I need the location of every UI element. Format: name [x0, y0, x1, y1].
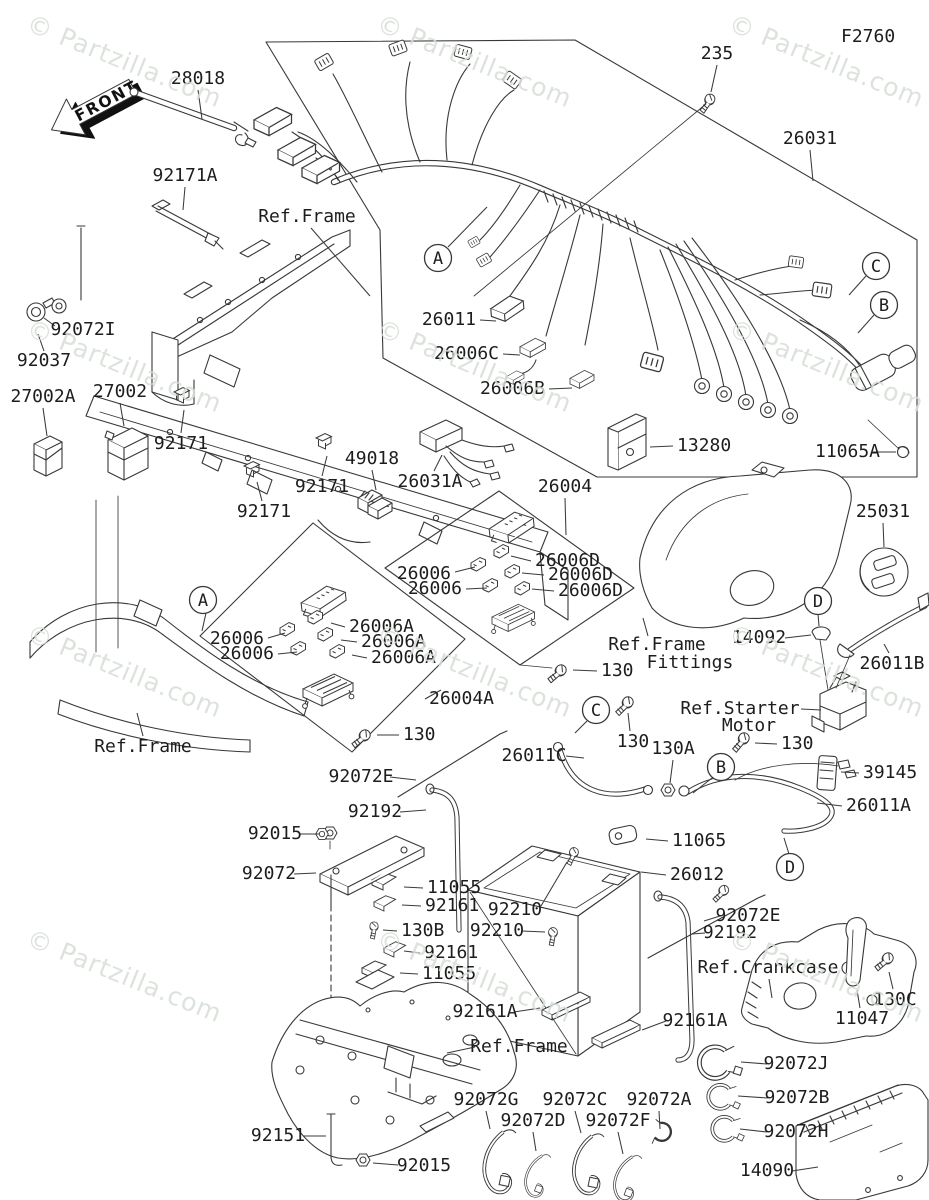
callout-letter-A-1: A	[198, 591, 208, 611]
fuse-icon	[505, 565, 520, 579]
screw-130-icon	[547, 663, 569, 686]
part-label-130-43: 130	[617, 731, 650, 752]
part-label-26031-2: 26031	[783, 128, 837, 149]
tie-92072D-icon	[524, 1152, 551, 1198]
leader-line-26011B	[884, 644, 889, 653]
part-label-130A-44: 130A	[651, 738, 695, 759]
leader-line-92072E	[390, 777, 416, 780]
leader-line-92192	[400, 810, 426, 812]
callout-leader-D	[818, 614, 819, 626]
leader-line-92072C	[575, 1111, 581, 1133]
part-label-11065A-19: 11065A	[815, 441, 880, 462]
part-label-26011-15: 26011	[422, 309, 476, 330]
clamp-92072B-icon	[708, 1085, 740, 1109]
relay-icon	[488, 510, 536, 545]
tie-92072C-icon	[574, 1134, 604, 1194]
part-label-49018-13: 49018	[345, 448, 399, 469]
part-label-235-1: 235	[701, 43, 734, 64]
part-label-92072A-74: 92072A	[626, 1089, 691, 1110]
frame-lower-drawing	[30, 496, 308, 752]
part-label-39145-46: 39145	[863, 762, 917, 783]
part-label-92210-60: 92210	[470, 920, 524, 941]
watermark-text-1: © Partzilla.com	[373, 9, 577, 114]
screw-130-icon	[351, 728, 373, 751]
part-label-Ref.Frame-34: Ref.Frame	[94, 736, 192, 757]
part-label-92210-59: 92210	[488, 899, 542, 920]
part-26006B-icon	[570, 370, 594, 388]
part-label-92171-10: 92171	[154, 433, 208, 454]
leader-line-Ref.Starter	[801, 709, 821, 710]
part-label-26011A-47: 26011A	[846, 795, 911, 816]
callout-letter-A-0: A	[433, 249, 443, 269]
relay-icon	[300, 584, 348, 619]
leader-line-92072F	[618, 1132, 623, 1154]
part-label-92171-11: 92171	[295, 476, 349, 497]
part-label-92072-51: 92072	[242, 863, 296, 884]
leader-line-26031A	[434, 455, 442, 471]
part-label-92072C-73: 92072C	[542, 1089, 607, 1110]
part-label-Ref.Frame-5: Ref.Frame	[258, 206, 356, 227]
leader-line-130	[755, 743, 777, 744]
leader-line-92015	[373, 1163, 398, 1165]
parts-diagram-page: FRONT	[0, 0, 929, 1200]
watermark-text-6: © Partzilla.com	[23, 619, 227, 724]
leader-line-92161	[402, 905, 421, 906]
leader-line-130A	[670, 760, 673, 783]
tie-92072G-icon	[484, 1130, 516, 1193]
clip-92171-icon	[316, 434, 332, 450]
leader-line-26006A	[341, 640, 357, 642]
leader-line-26006C	[503, 354, 520, 355]
connector-icon	[640, 352, 664, 372]
callout-letter-C-4: C	[591, 701, 601, 721]
leader-line-92072G	[486, 1111, 490, 1129]
part-label-F2760-0: F2760	[841, 26, 895, 47]
part-label-26006-26: 26006	[408, 578, 462, 599]
part-label-92072E-48: 92072E	[328, 766, 393, 787]
leader-line-26006A	[331, 623, 345, 627]
part-label-92161-53: 92161	[425, 895, 479, 916]
leader-line-13280	[650, 446, 673, 447]
connector-26011-icon	[490, 295, 525, 323]
callout-leader-C	[575, 721, 587, 733]
leader-line-130	[573, 670, 597, 671]
leader-line-92072A	[659, 1111, 660, 1129]
part-label-92072J-69: 92072J	[763, 1053, 828, 1074]
part-label-26012-58: 26012	[670, 864, 724, 885]
leader-line-26011	[480, 320, 496, 321]
part-label-92192-49: 92192	[348, 801, 402, 822]
watermark-text-2: © Partzilla.com	[725, 9, 929, 114]
part-49018	[358, 490, 392, 519]
leader-line-27002	[120, 403, 124, 426]
part-11065	[608, 824, 638, 845]
part-25031	[860, 548, 908, 596]
callout-letter-B-3: B	[879, 296, 889, 316]
connector-icon	[468, 236, 481, 248]
watermark-text-9: © Partzilla.com	[23, 924, 227, 1029]
leader-line-26011C	[566, 756, 584, 758]
part-label-92072D-75: 92072D	[500, 1110, 565, 1131]
harness-box-26031	[254, 40, 919, 477]
part-label-Ref.Frame-68: Ref.Frame	[470, 1036, 568, 1057]
fuse-icon	[483, 579, 498, 593]
screw-130-icon	[614, 695, 635, 718]
leader-line-26006A	[352, 655, 367, 658]
leader-line-130	[628, 713, 630, 731]
leader-line-14092	[785, 635, 811, 638]
junction-box-icon	[303, 674, 354, 708]
fuse-icon	[318, 628, 333, 642]
part-label-26011B-38: 26011B	[859, 653, 924, 674]
callout-leader-D	[784, 838, 789, 854]
part-label-26004-20: 26004	[538, 476, 592, 497]
part-11055	[356, 961, 394, 989]
fuse-icon	[291, 642, 306, 656]
part-13280	[608, 414, 646, 470]
part-label-130-39: 130	[601, 660, 634, 681]
leader-line-26006D	[522, 573, 544, 575]
clamp-92072H-icon	[712, 1117, 744, 1141]
fuse-icon	[330, 645, 345, 659]
nut-92015-icon	[356, 1154, 370, 1166]
fuse-icon	[471, 558, 486, 572]
leader-line-11055	[404, 887, 423, 888]
part-label-92072H-71: 92072H	[763, 1121, 828, 1142]
callout-leader-A	[202, 613, 206, 631]
part-label-26006-31: 26006	[220, 643, 274, 664]
junction-box-icon	[492, 604, 536, 633]
part-92161-icon	[374, 896, 396, 911]
part-label-92072G-72: 92072G	[453, 1089, 518, 1110]
part-label-92171-12: 92171	[237, 501, 291, 522]
leader-line-92072D	[533, 1132, 536, 1151]
nut-130A-icon	[661, 784, 675, 796]
leader-line-11065	[646, 839, 668, 841]
leader-line-92171	[181, 410, 184, 433]
connector-icon	[254, 108, 292, 136]
connector-icon	[278, 138, 316, 166]
leader-line-235	[711, 65, 717, 92]
leader-line-92072	[294, 873, 316, 874]
tie-92072F-icon	[612, 1153, 642, 1200]
part-label-130-33: 130	[403, 724, 436, 745]
part-92171A	[152, 200, 223, 249]
part-label-130-45: 130	[781, 733, 814, 754]
callout-letter-C-2: C	[871, 257, 881, 277]
part-label-14090-79: 14090	[740, 1160, 794, 1181]
chassis-electrical-equipment-diagram: FRONT	[0, 0, 929, 1200]
callout-leader-C	[849, 276, 866, 295]
connector-icon	[314, 53, 334, 71]
leader-line-26012	[641, 872, 666, 875]
bolt-icon	[712, 883, 731, 904]
part-label-92151-77: 92151	[251, 1125, 305, 1146]
part-92037	[27, 226, 85, 321]
connector-icon	[788, 256, 804, 269]
leader-line-26031	[810, 150, 813, 181]
part-label-27002A-8: 27002A	[10, 386, 75, 407]
part-92192	[654, 891, 692, 1060]
diagram-artwork: FRONT	[27, 40, 929, 1200]
callout-letter-D-7: D	[785, 858, 795, 878]
callout-leader-B	[858, 315, 874, 333]
callout-letter-B-5: B	[716, 758, 726, 778]
part-label-26011C-42: 26011C	[501, 745, 566, 766]
part-label-26031A-14: 26031A	[397, 471, 462, 492]
part-label-92015-78: 92015	[397, 1155, 451, 1176]
connector-icon	[476, 253, 492, 268]
leader-line-92171A	[183, 187, 185, 210]
part-label-92171A-4: 92171A	[152, 165, 217, 186]
part-26006C-icon	[520, 338, 546, 357]
part-27002	[105, 428, 148, 480]
screw-130B-icon	[370, 922, 378, 939]
callout-letter-D-6: D	[813, 592, 823, 612]
fuse-icon	[515, 582, 530, 596]
part-label-Fittings-36: Fittings	[647, 652, 734, 673]
part-92072	[320, 836, 424, 895]
part-label-92072B-70: 92072B	[764, 1087, 829, 1108]
part-label-Motor-41: Motor	[722, 715, 776, 736]
leader-line-11055	[400, 973, 418, 974]
clamp-92072J-icon	[697, 1043, 743, 1080]
part-27002A	[34, 436, 62, 476]
leader-line-26006	[268, 633, 285, 638]
part-label-26004A-32: 26004A	[429, 688, 494, 709]
part-label-92015-50: 92015	[248, 823, 302, 844]
part-39145	[817, 755, 837, 790]
connector-icon	[812, 282, 832, 298]
leader-line-39145	[841, 772, 859, 773]
leader-line-26006D	[511, 556, 531, 561]
part-label-13280-18: 13280	[677, 435, 731, 456]
leader-line-25031	[883, 523, 884, 547]
part-label-92072F-76: 92072F	[585, 1110, 650, 1131]
fuse-icon	[494, 545, 509, 559]
clip-92072A-icon	[652, 1119, 671, 1143]
part-label-11065-57: 11065	[672, 830, 726, 851]
screw-235-icon	[699, 92, 717, 115]
part-label-26006D-24: 26006D	[558, 580, 623, 601]
leader-line-27002A	[43, 408, 47, 436]
callout-leader-A	[448, 207, 487, 247]
part-label-25031-21: 25031	[856, 501, 910, 522]
leader-line-26004	[565, 498, 566, 535]
part-label-92161A-67: 92161A	[662, 1010, 727, 1031]
